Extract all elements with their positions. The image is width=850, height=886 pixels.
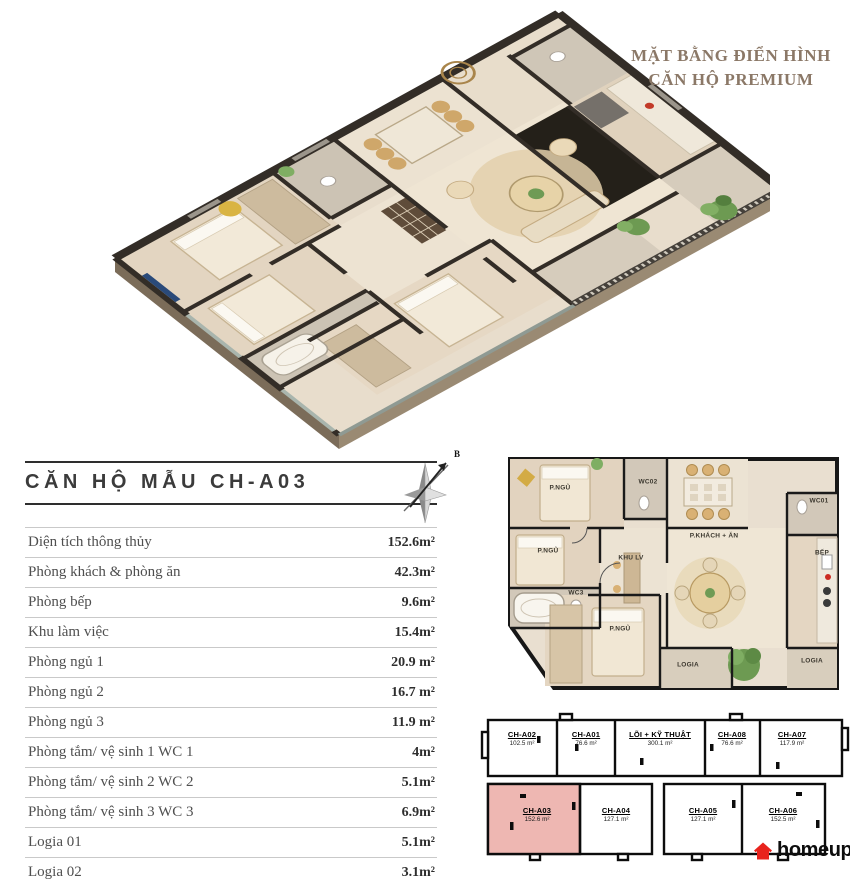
unit-area: 102.5 m² xyxy=(508,740,536,747)
bed-icon xyxy=(516,535,564,585)
floor-plan-2d: P.NGỦ WC02 WC01 P.NGỦ WC3 KHU LV P.KHÁCH… xyxy=(492,443,848,705)
unit-id: CH-A05 xyxy=(689,806,717,815)
unit-heading: CĂN HỘ MẪU CH-A03 xyxy=(25,471,437,494)
row-label: Phòng khách & phòng ăn xyxy=(28,564,180,581)
table-row: Phòng ngủ 311.9 m² xyxy=(25,708,437,738)
homeup-house-icon xyxy=(752,840,774,862)
room-label-logia1: LOGIA xyxy=(677,662,699,669)
row-label: Logia 01 xyxy=(28,834,82,851)
room-label-bedroom2: P.NGỦ xyxy=(538,548,559,555)
unit-area: 300.1 m² xyxy=(629,740,691,747)
unit-id: CH-A02 xyxy=(508,730,536,739)
room-label-logia2: LOGIA xyxy=(801,658,823,665)
unit-cell-label: LÕI + KỸ THUẬT 300.1 m² xyxy=(629,730,691,747)
row-value: 11.9 m² xyxy=(392,715,435,731)
page-title-line2: CĂN HỘ PREMIUM xyxy=(620,68,842,92)
homeup-logo: homeup xyxy=(752,839,850,862)
unit-area: 152.5 m² xyxy=(769,816,797,823)
page-title: MẶT BẰNG ĐIỂN HÌNH CĂN HỘ PREMIUM xyxy=(620,44,842,92)
row-label: Phòng tắm/ vệ sinh 2 WC 2 xyxy=(28,774,194,791)
room-label-wc01: WC01 xyxy=(809,498,828,505)
row-label: Khu làm việc xyxy=(28,624,109,641)
row-value: 15.4m² xyxy=(395,625,435,641)
row-value: 5.1m² xyxy=(402,835,435,851)
wardrobe-icon xyxy=(550,605,582,683)
room-label-wc03: WC3 xyxy=(568,590,583,597)
row-label: Phòng ngủ 3 xyxy=(28,714,104,731)
row-value: 4m² xyxy=(412,745,435,761)
row-value: 9.6m² xyxy=(402,595,435,611)
dining-table-icon xyxy=(684,465,732,520)
unit-info-panel: CĂN HỘ MẪU CH-A03 Diện tích thông thủy15… xyxy=(25,461,437,886)
unit-id: CH-A08 xyxy=(718,730,746,739)
row-label: Logia 02 xyxy=(28,864,82,881)
unit-cell-label: CH-A05 127.1 m² xyxy=(689,806,717,823)
unit-cell-label: CH-A07 117.9 m² xyxy=(778,730,806,747)
unit-cell-label: CH-A04 127.1 m² xyxy=(602,806,630,823)
room-label-wc02: WC02 xyxy=(638,479,657,486)
table-row: Logia 023.1m² xyxy=(25,858,437,886)
brochure-page: MẶT BẰNG ĐIỂN HÌNH CĂN HỘ PREMIUM CĂN HỘ… xyxy=(0,0,850,886)
plant-icon xyxy=(591,458,603,470)
unit-area: 117.9 m² xyxy=(778,740,806,747)
unit-id: LÕI + KỸ THUẬT xyxy=(629,730,691,739)
north-label: B xyxy=(454,449,460,459)
table-row: Phòng tắm/ vệ sinh 1 WC 14m² xyxy=(25,738,437,768)
room-label-bedroom3: P.NGỦ xyxy=(610,626,631,633)
table-row: Phòng ngủ 120.9 m² xyxy=(25,648,437,678)
unit-cell-label: CH-A01 76.6 m² xyxy=(572,730,600,747)
unit-area: 152.6 m² xyxy=(523,816,551,823)
unit-area: 127.1 m² xyxy=(602,816,630,823)
row-value: 6.9m² xyxy=(402,805,435,821)
bed-icon xyxy=(540,465,590,521)
area-table: Diện tích thông thủy152.6m² Phòng khách … xyxy=(25,527,437,886)
row-value: 16.7 m² xyxy=(391,685,435,701)
compass-icon: B xyxy=(396,449,462,529)
row-label: Phòng tắm/ vệ sinh 3 WC 3 xyxy=(28,804,194,821)
row-label: Phòng ngủ 1 xyxy=(28,654,104,671)
page-title-line1: MẶT BẰNG ĐIỂN HÌNH xyxy=(620,44,842,68)
unit-area: 127.1 m² xyxy=(689,816,717,823)
unit-id: CH-A01 xyxy=(572,730,600,739)
unit-id: CH-A04 xyxy=(602,806,630,815)
heading-block: CĂN HỘ MẪU CH-A03 xyxy=(25,461,437,505)
table-row: Phòng ngủ 216.7 m² xyxy=(25,678,437,708)
unit-cell-label-highlighted: CH-A03 152.6 m² xyxy=(523,806,551,823)
row-label: Phòng ngủ 2 xyxy=(28,684,104,701)
row-label: Phòng bếp xyxy=(28,594,92,611)
table-row: Khu làm việc15.4m² xyxy=(25,618,437,648)
row-label: Diện tích thông thủy xyxy=(28,534,152,551)
toilet-icon xyxy=(797,500,807,514)
unit-cell-label: CH-A06 152.5 m² xyxy=(769,806,797,823)
logo-text: homeup xyxy=(777,839,850,862)
unit-cell-label: CH-A08 76.6 m² xyxy=(718,730,746,747)
room-label-work-area: KHU LV xyxy=(618,555,643,562)
row-value: 5.1m² xyxy=(402,775,435,791)
room-label-kitchen: BẾP xyxy=(815,550,829,557)
table-row: Logia 015.1m² xyxy=(25,828,437,858)
table-row: Phòng tắm/ vệ sinh 2 WC 25.1m² xyxy=(25,768,437,798)
table-row: Phòng tắm/ vệ sinh 3 WC 36.9m² xyxy=(25,798,437,828)
row-value: 3.1m² xyxy=(402,865,435,881)
unit-area: 76.6 m² xyxy=(718,740,746,747)
toilet-icon xyxy=(639,496,649,510)
row-value: 42.3m² xyxy=(395,565,435,581)
row-label: Phòng tắm/ vệ sinh 1 WC 1 xyxy=(28,744,194,761)
round-table-icon xyxy=(674,557,746,629)
room-label-living-dining: P.KHÁCH + ĂN xyxy=(690,533,739,540)
row-value: 20.9 m² xyxy=(391,655,435,671)
unit-cell-label: CH-A02 102.5 m² xyxy=(508,730,536,747)
table-row: Phòng khách & phòng ăn42.3m² xyxy=(25,558,437,588)
row-value: 152.6m² xyxy=(388,535,435,551)
unit-area: 76.6 m² xyxy=(572,740,600,747)
room-label-bedroom1: P.NGỦ xyxy=(550,485,571,492)
unit-id: CH-A03 xyxy=(523,806,551,815)
table-row: Diện tích thông thủy152.6m² xyxy=(25,527,437,558)
unit-id: CH-A06 xyxy=(769,806,797,815)
unit-id: CH-A07 xyxy=(778,730,806,739)
table-row: Phòng bếp9.6m² xyxy=(25,588,437,618)
